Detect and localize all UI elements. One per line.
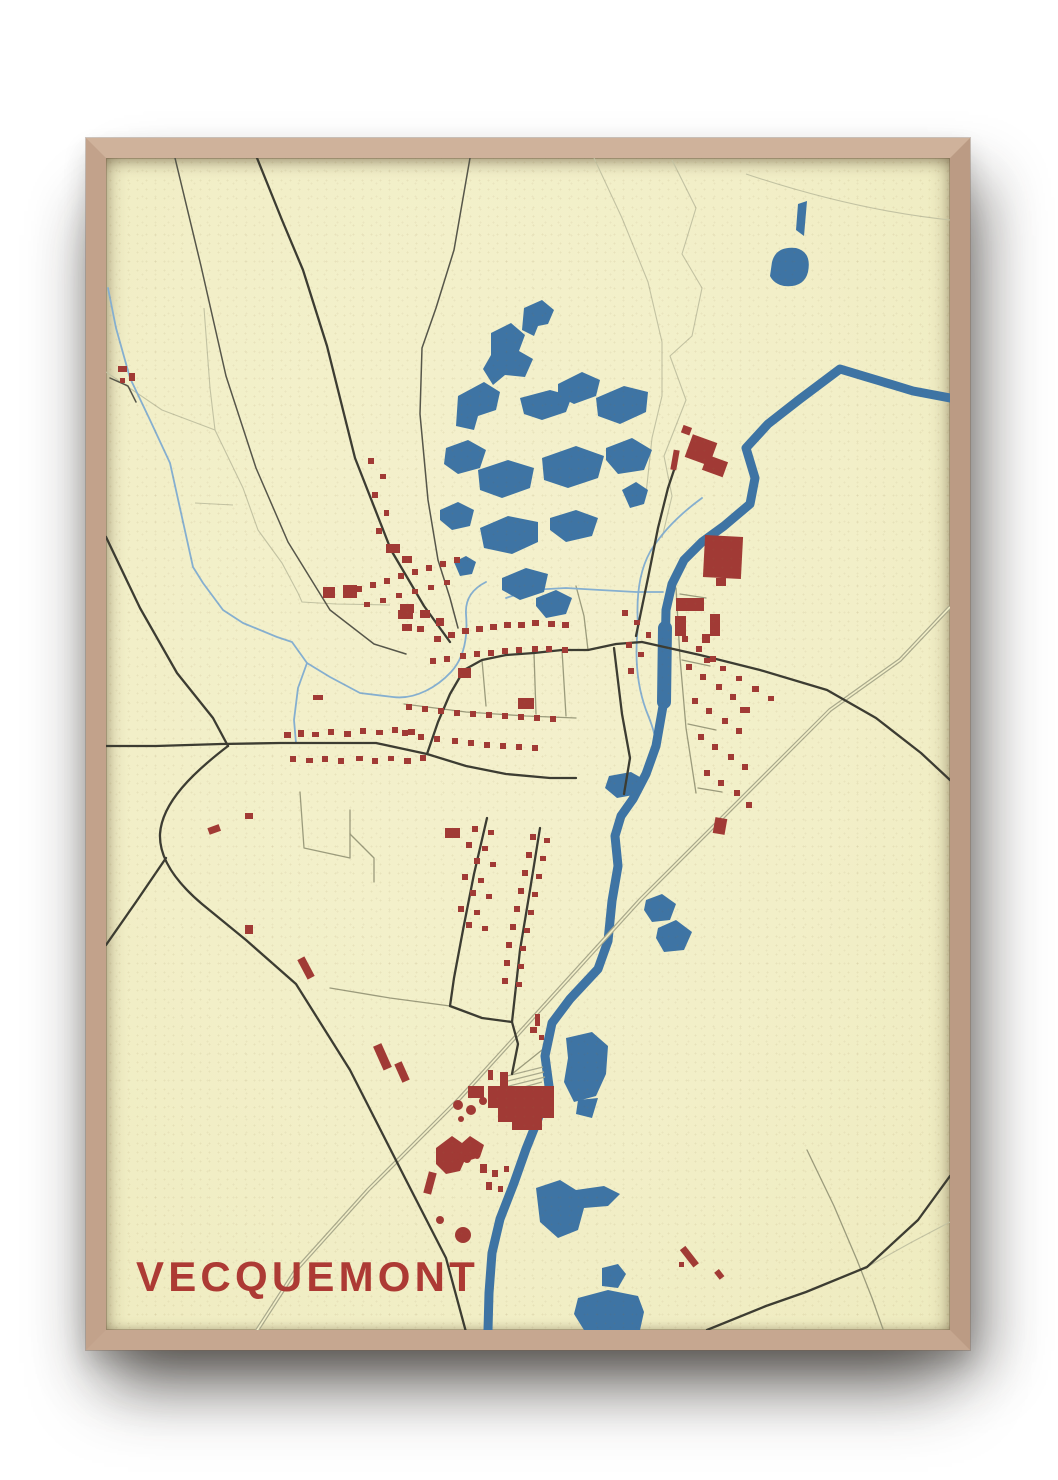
east-bank-buildings [670,425,774,835]
church-building [458,668,471,678]
factory-complex [423,1070,554,1243]
wall: VECQUEMONT [0,0,1058,1480]
water-layer [440,201,950,1330]
south-houses [245,826,550,1083]
storage-tank [455,1227,471,1243]
lakes [440,300,652,618]
southeast-farm-buildings [679,1246,724,1280]
railway-layer [256,607,950,1330]
west-hamlet-buildings [118,366,135,383]
poster-title: VECQUEMONT [136,1256,479,1298]
building-layer [118,366,774,1280]
map-poster: VECQUEMONT [106,158,950,1330]
minor-road-layer [300,586,884,1330]
stream-layer [108,288,702,743]
poster-frame: VECQUEMONT [86,138,970,1350]
storage-tank [436,1216,444,1224]
vecquemont-town-map [106,158,950,1330]
warehouse-building [703,535,743,579]
northwest-houses [323,458,460,632]
ponds [536,201,809,1330]
west-row-houses [207,695,426,835]
